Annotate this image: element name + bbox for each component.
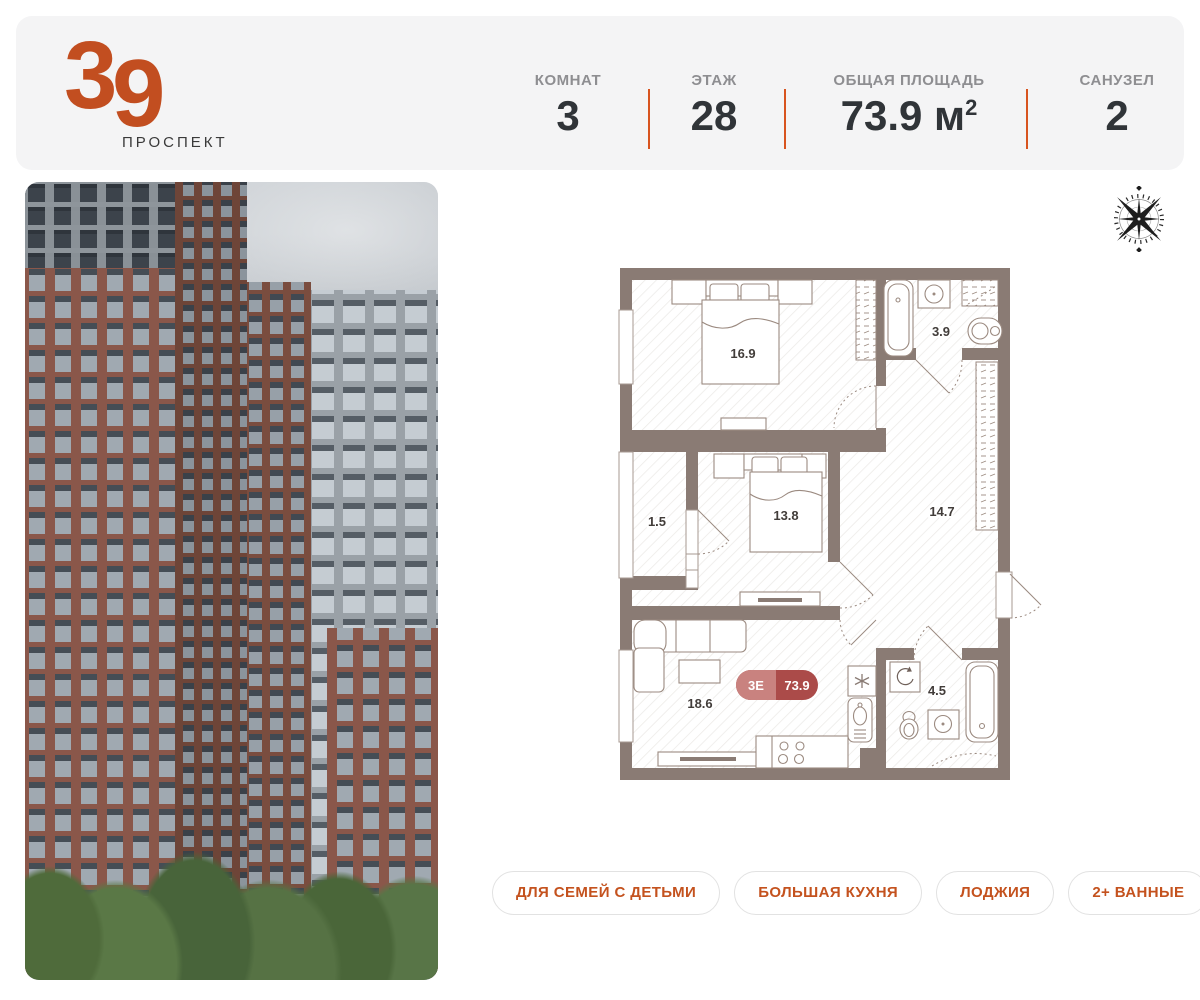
logo-number-9: 9 [112, 46, 165, 142]
compass-icon [1102, 186, 1176, 252]
tag-bathrooms[interactable]: 2+ ВАННЫЕ [1068, 871, 1200, 915]
stat-rooms-value: 3 [498, 93, 638, 139]
bathtub-top [884, 280, 913, 356]
stat-total-area: ОБЩАЯ ПЛОЩАДЬ 73.9 м2 [809, 72, 1009, 139]
coffee-table [679, 660, 720, 683]
stat-rooms-label: КОМНАТ [498, 72, 638, 89]
building-photo [25, 182, 438, 980]
stat-total-area-value: 73.9 м2 [809, 93, 1009, 139]
tag-family[interactable]: ДЛЯ СЕМЕЙ С ДЕТЬМИ [492, 871, 720, 915]
room-label-bath-bottom: 4.5 [928, 683, 946, 698]
kitchen-sink [848, 698, 872, 742]
tag-big-kitchen[interactable]: БОЛЬШАЯ КУХНЯ [734, 871, 922, 915]
room-label-bedroom1: 16.9 [730, 346, 755, 361]
stat-total-area-label: ОБЩАЯ ПЛОЩАДЬ [809, 72, 1009, 89]
stat-divider [1026, 89, 1028, 149]
bathtub-bottom [966, 662, 998, 742]
stat-floor: ЭТАЖ 28 [644, 72, 784, 139]
tv-stand-living [658, 752, 758, 766]
tag-loggia[interactable]: ЛОДЖИЯ [936, 871, 1054, 915]
stat-bathrooms-label: САНУЗЕЛ [1047, 72, 1187, 89]
trees [25, 795, 438, 980]
room-label-bath-top: 3.9 [932, 324, 950, 339]
stat-bathrooms-value: 2 [1047, 93, 1187, 139]
toilet-top [968, 318, 1002, 344]
room-label-kitchen: 18.6 [687, 696, 712, 711]
stat-floor-label: ЭТАЖ [644, 72, 784, 89]
plan-badge-type: 3Е [748, 678, 764, 693]
fridge-icon [848, 666, 876, 696]
room-label-bedroom2: 13.8 [773, 508, 798, 523]
sink-top [918, 280, 950, 308]
floor-plan: 16.9 3.9 1.5 13.8 14.7 18.6 4.5 3Е 73.9 [610, 258, 1050, 792]
stat-rooms: КОМНАТ 3 [498, 72, 638, 139]
sink-bottom [928, 710, 959, 739]
header-card: 3 ПРОСПЕКТ 9 КОМНАТ 3 ЭТАЖ 28 ОБЩАЯ ПЛОЩ… [16, 16, 1184, 170]
washer-icon [890, 662, 920, 692]
feature-tags: ДЛЯ СЕМЕЙ С ДЕТЬМИ БОЛЬШАЯ КУХНЯ ЛОДЖИЯ … [492, 871, 1200, 915]
stat-total-area-sup: 2 [965, 95, 977, 120]
plan-badge-area: 73.9 [784, 678, 809, 693]
plan-badge: 3Е 73.9 [736, 670, 818, 700]
kitchen-counter [756, 736, 848, 768]
stat-divider [784, 89, 786, 149]
logo[interactable]: 3 ПРОСПЕКТ 9 [50, 42, 270, 152]
tower-left-top [25, 182, 183, 276]
stat-floor-value: 28 [644, 93, 784, 139]
room-label-loggia: 1.5 [648, 514, 666, 529]
stat-bathrooms: САНУЗЕЛ 2 [1047, 72, 1187, 139]
room-label-hall: 14.7 [929, 504, 954, 519]
stat-total-area-number: 73.9 м [841, 92, 965, 139]
